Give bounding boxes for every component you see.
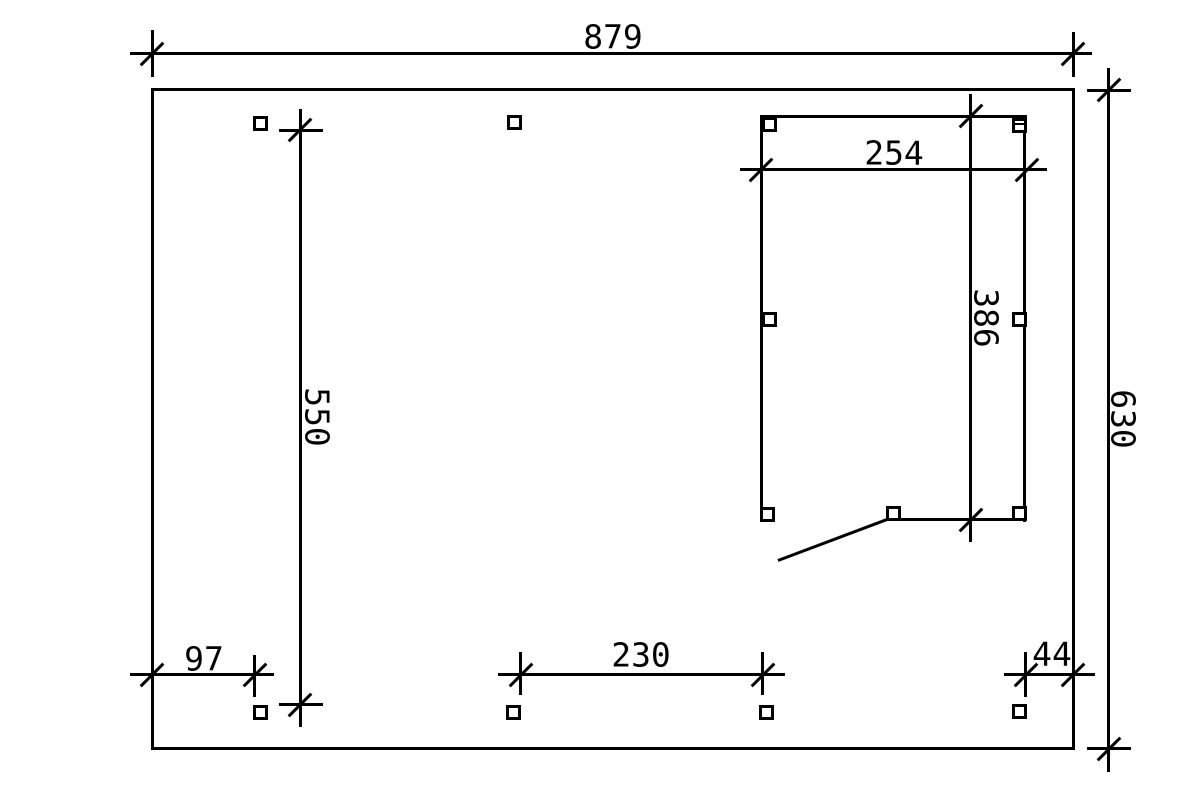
dim-label-room-depth: 386 xyxy=(970,288,1003,348)
post-marker xyxy=(1012,704,1027,719)
dim-label-left-bay-depth: 550 xyxy=(301,387,334,447)
post-marker xyxy=(507,115,522,130)
dim-label-room-width: 254 xyxy=(864,137,924,170)
post-marker xyxy=(506,705,521,720)
post-marker xyxy=(759,705,774,720)
post-marker xyxy=(762,117,777,132)
dim-label-total-width: 879 xyxy=(583,21,643,54)
dim-label-rear-offset: 44 xyxy=(1032,638,1072,671)
post-marker xyxy=(253,705,268,720)
post-marker xyxy=(1012,312,1027,327)
post-marker xyxy=(253,116,268,131)
post-marker-with-detail xyxy=(1012,118,1027,133)
interior-room-wall-bottom xyxy=(886,518,1027,521)
post-detail-line xyxy=(1015,123,1024,125)
post-marker xyxy=(762,312,777,327)
post-marker xyxy=(760,507,775,522)
dim-label-post-spacing: 230 xyxy=(611,639,671,672)
post-marker xyxy=(886,506,901,521)
interior-room-wall-top xyxy=(760,115,1027,118)
floor-plan-canvas: 879 254 97 230 44 550 386 630 xyxy=(0,0,1200,800)
post-marker xyxy=(1012,506,1027,521)
dim-label-front-offset: 97 xyxy=(184,643,224,676)
dim-label-total-depth: 630 xyxy=(1107,389,1140,449)
